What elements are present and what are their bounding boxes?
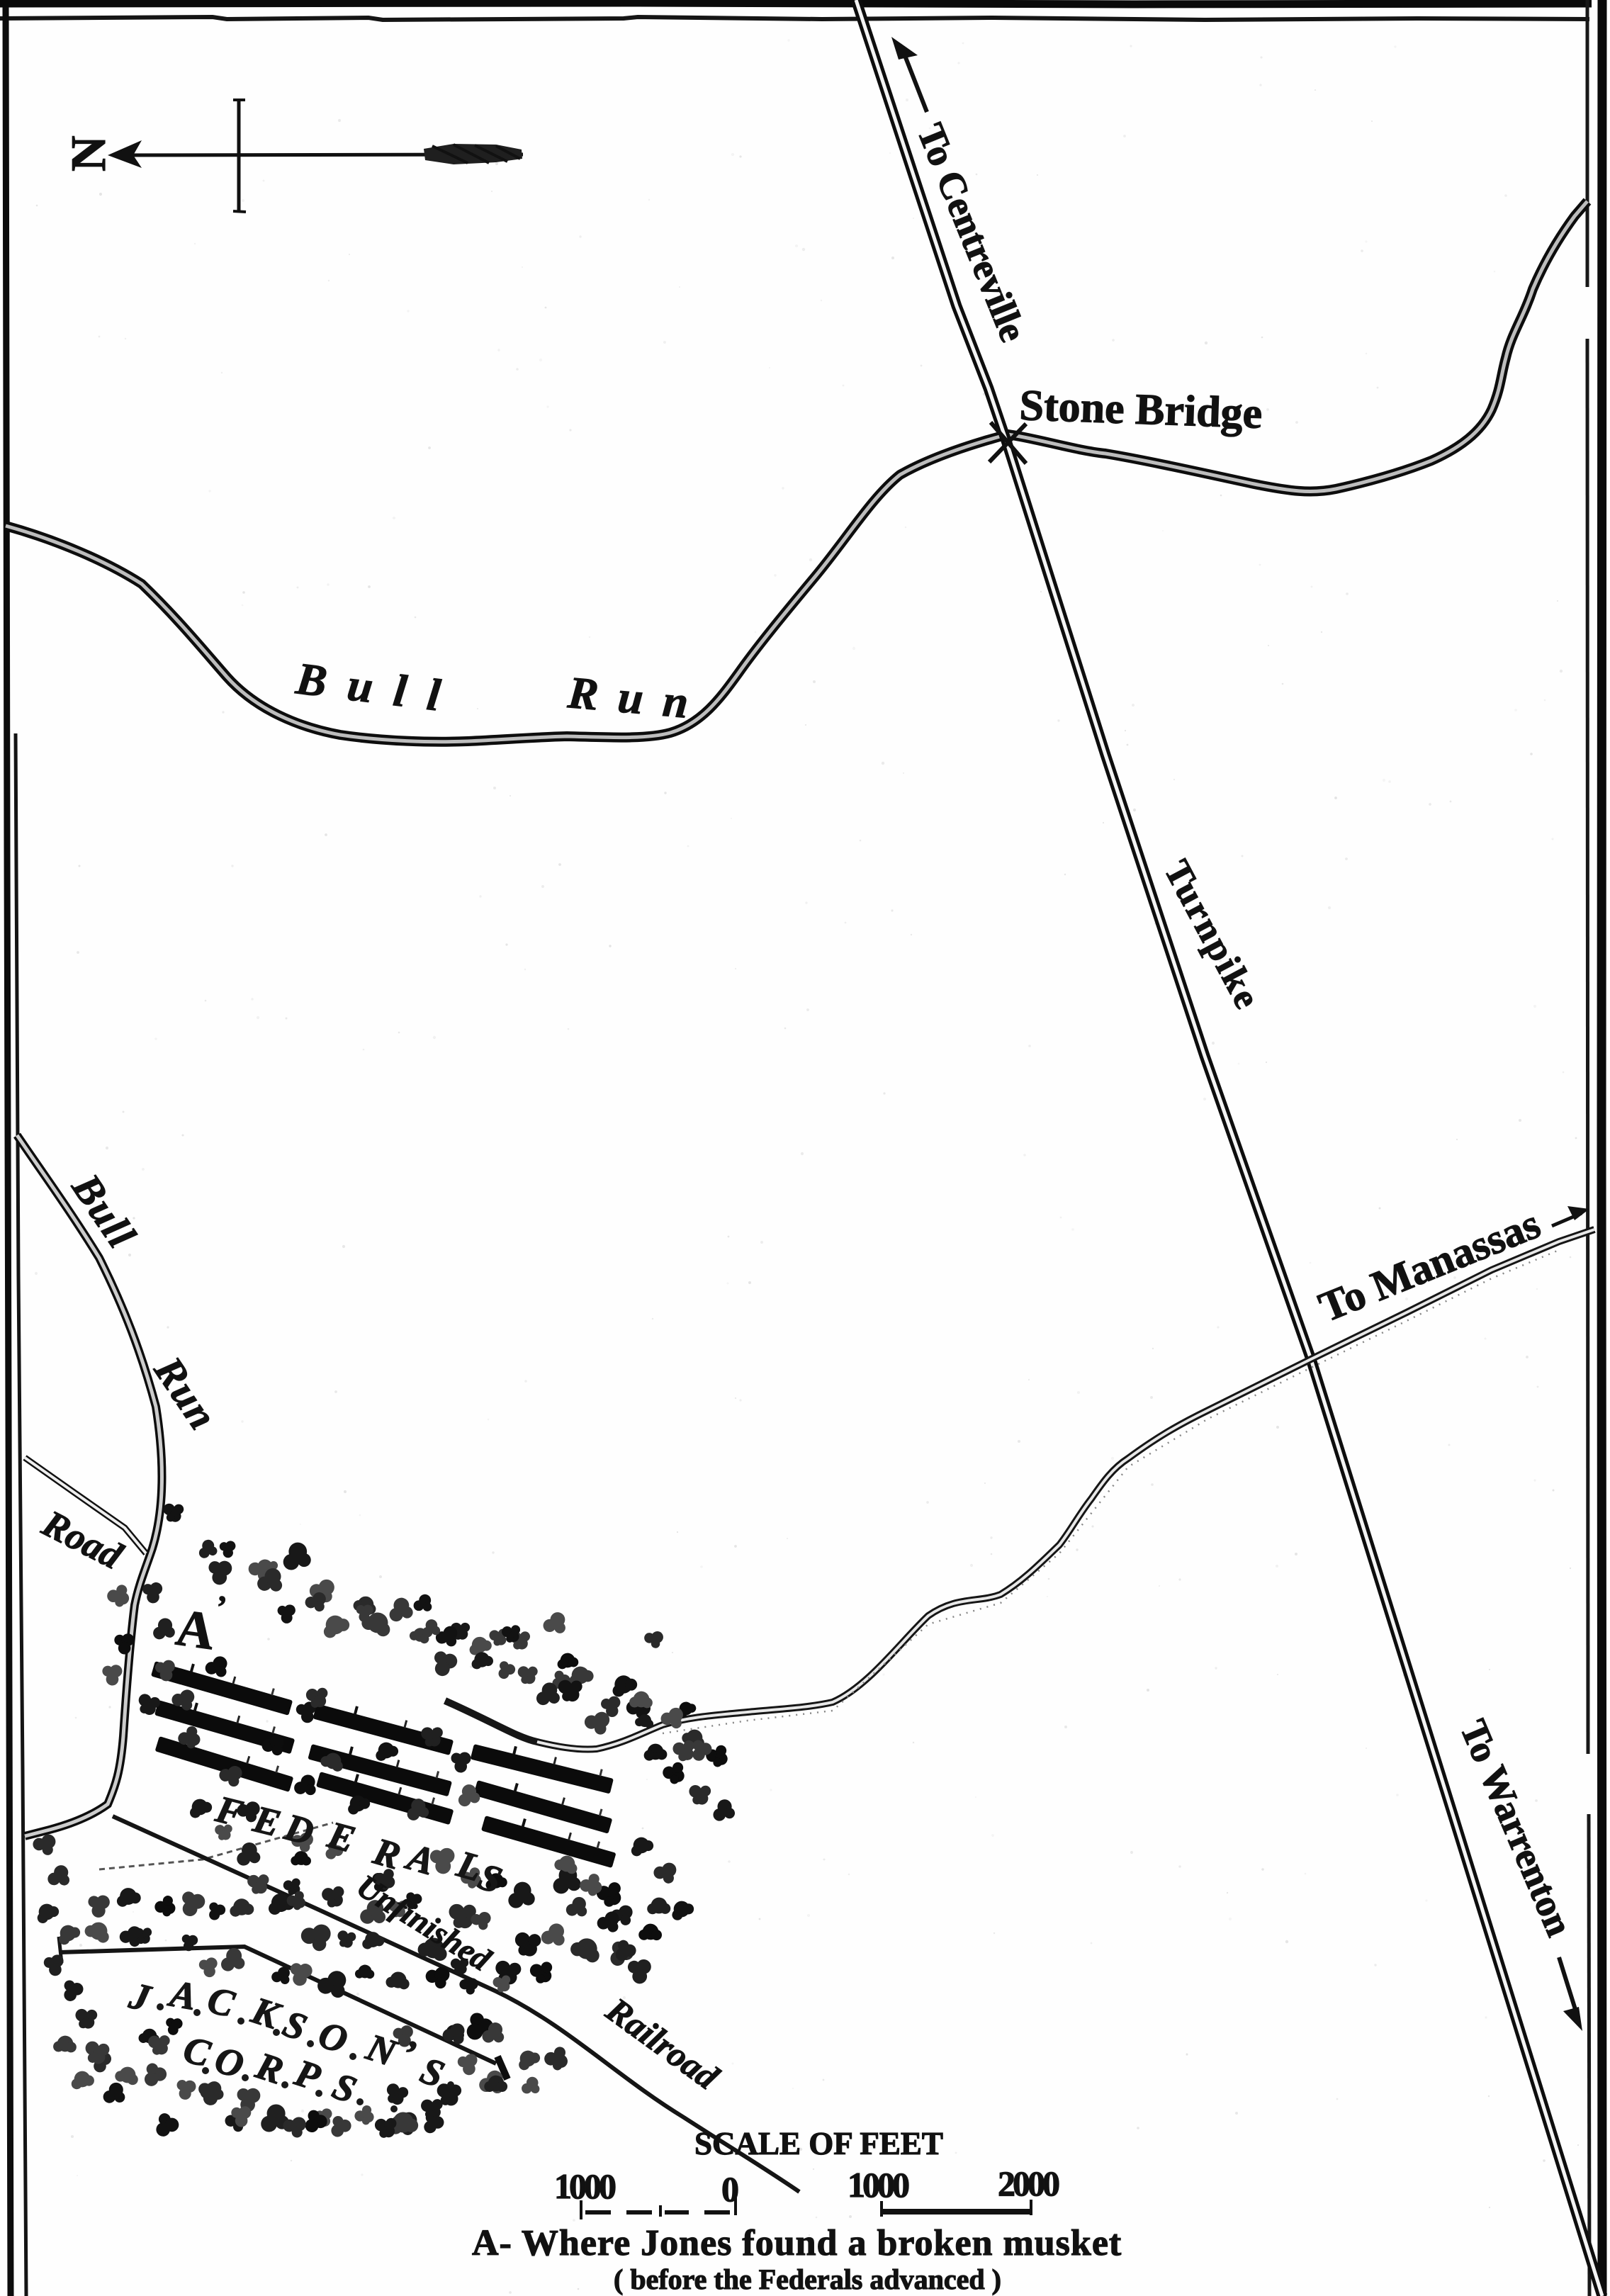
svg-text:Stone Bridge: Stone Bridge bbox=[1019, 381, 1263, 438]
svg-text:A: A bbox=[173, 1599, 218, 1662]
svg-text:1000: 1000 bbox=[554, 2166, 616, 2206]
svg-text:1000: 1000 bbox=[848, 2165, 909, 2205]
svg-text:N: N bbox=[62, 135, 116, 171]
svg-text:SCALE OF FEET: SCALE OF FEET bbox=[694, 2126, 943, 2161]
svg-text:A- Where Jones found a broken: A- Where Jones found a broken musket bbox=[472, 2223, 1122, 2263]
svg-text:’: ’ bbox=[217, 1589, 227, 1624]
svg-text:2000: 2000 bbox=[998, 2163, 1059, 2203]
svg-text:( before the Federals advanced: ( before the Federals advanced ) bbox=[614, 2263, 1001, 2295]
